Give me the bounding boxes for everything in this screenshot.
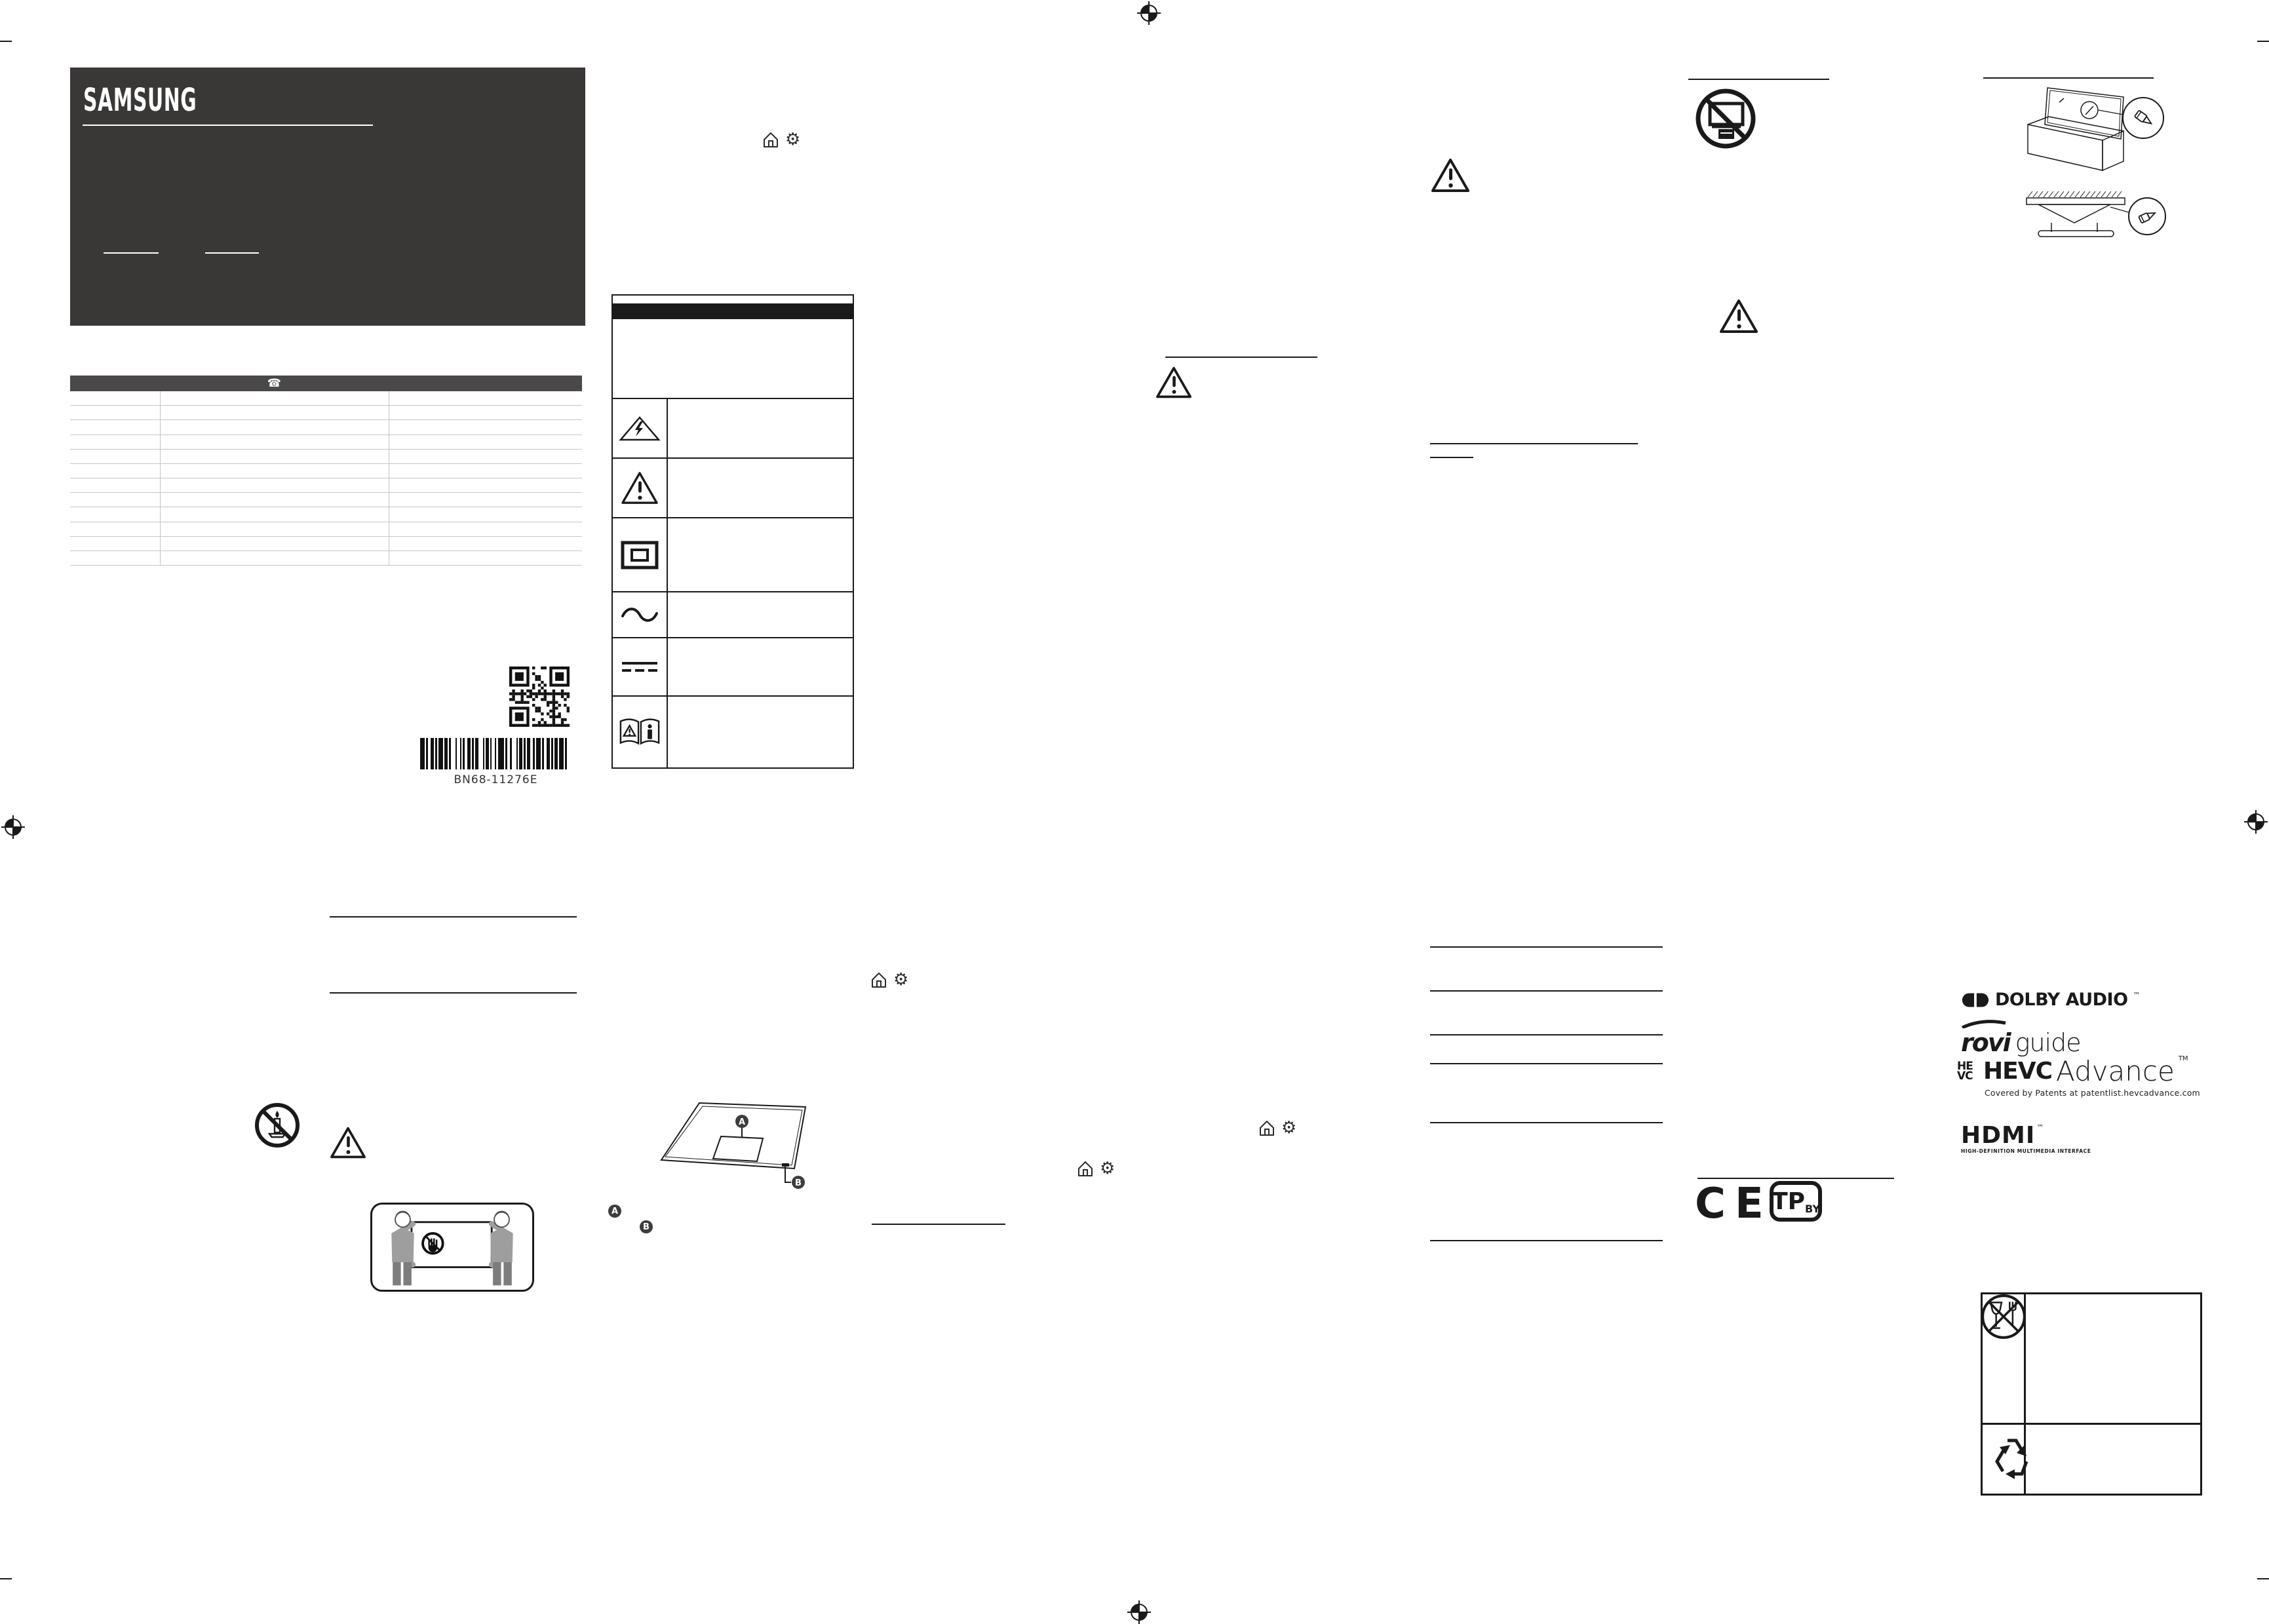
dolby-wordmark: DOLBY AUDIO bbox=[1995, 990, 2128, 1010]
barcode-bar bbox=[420, 738, 425, 769]
section-rule bbox=[1430, 1034, 1663, 1035]
telephone-icon: ☎ bbox=[160, 376, 389, 391]
model-fill-in-line bbox=[104, 252, 159, 254]
tv-back-panel-figure: A B bbox=[657, 1101, 808, 1199]
symbol-table-title-band bbox=[613, 303, 853, 319]
barcode-bar bbox=[512, 738, 516, 769]
contact-table-row bbox=[70, 507, 582, 522]
no-tv-on-furniture-icon bbox=[1694, 87, 1758, 151]
symbol-description-cell bbox=[668, 592, 853, 637]
settings-gear-icon: ⚙ bbox=[785, 131, 800, 148]
serial-fill-in-line bbox=[205, 252, 259, 254]
brand-cover-card: SAMSUNG bbox=[70, 68, 585, 326]
page-edge-tick bbox=[2257, 1578, 2269, 1579]
rovi-guide-word: guide bbox=[2015, 1028, 2081, 1057]
no-candle-icon bbox=[253, 1101, 301, 1150]
barcode-bar bbox=[498, 738, 504, 769]
ce-mark: CE bbox=[1695, 1180, 1773, 1228]
high-voltage-warning-icon bbox=[613, 399, 668, 457]
column-divider bbox=[389, 391, 389, 566]
barcode-bar bbox=[478, 738, 483, 769]
section-rule bbox=[1983, 77, 2154, 79]
hevc-stack-bottom: VC bbox=[1957, 1072, 1979, 1081]
settings-gear-icon: ⚙ bbox=[1100, 1160, 1115, 1177]
symbol-description-cell bbox=[668, 638, 853, 695]
carry-figure-art bbox=[372, 1205, 532, 1290]
column-divider bbox=[160, 391, 161, 566]
contact-table-row bbox=[70, 478, 582, 493]
home-icon bbox=[870, 971, 887, 988]
hevc-stack-icon: HE VC bbox=[1957, 1062, 1979, 1081]
symbol-row bbox=[613, 517, 853, 591]
callout-a-badge: A bbox=[608, 1205, 621, 1218]
dolby-audio-logo: DOLBY AUDIO ™ bbox=[1961, 990, 2141, 1010]
page-edge-tick bbox=[0, 1578, 12, 1579]
hevc-advance-logo: HE VC HEVC Advance TM bbox=[1957, 1055, 2188, 1087]
rovi-swoosh-icon bbox=[1961, 1020, 2007, 1028]
contact-table-row bbox=[70, 464, 582, 478]
symbol-row bbox=[613, 398, 853, 457]
tp-region-label: BY bbox=[1805, 1203, 1820, 1215]
heading-underline bbox=[1430, 443, 1638, 444]
contact-table-row bbox=[70, 420, 582, 435]
section-rule bbox=[1430, 990, 1663, 992]
barcode-bar bbox=[567, 738, 572, 769]
page-edge-tick bbox=[0, 41, 12, 42]
rovi-wordmark: rovi bbox=[1961, 1028, 2010, 1057]
home-icon bbox=[1077, 1160, 1094, 1177]
dolby-double-d-icon bbox=[1961, 992, 1990, 1008]
registration-mark-icon bbox=[1137, 1, 1161, 25]
section-rule bbox=[330, 916, 577, 918]
recycling-icon bbox=[1985, 1431, 2038, 1483]
heading-underline bbox=[1430, 457, 1473, 458]
callout-a-label: A bbox=[611, 1207, 618, 1216]
section-rule bbox=[1430, 1240, 1663, 1241]
hdmi-wordmark: HDMI bbox=[1961, 1122, 2035, 1149]
qr-code bbox=[509, 667, 570, 727]
callout-b-badge: B bbox=[640, 1220, 653, 1233]
section-rule bbox=[1165, 357, 1317, 358]
symbol-description-cell bbox=[668, 518, 853, 591]
symbol-row bbox=[613, 457, 853, 517]
barcode bbox=[420, 738, 572, 769]
contact-table-row bbox=[70, 522, 582, 537]
page-edge-tick bbox=[2257, 41, 2269, 42]
warning-triangle-icon bbox=[1430, 157, 1471, 194]
cover-divider-line bbox=[83, 125, 373, 126]
symbol-description-cell bbox=[668, 399, 853, 457]
home-icon bbox=[762, 131, 779, 148]
unpacking-screw-figure bbox=[2025, 84, 2169, 181]
two-person-carry-figure bbox=[370, 1203, 534, 1292]
contact-table-row bbox=[70, 435, 582, 450]
contact-table-row bbox=[70, 537, 582, 551]
symbol-table-intro bbox=[613, 319, 853, 398]
table-divider bbox=[1983, 1423, 2200, 1425]
menu-path-icons: ⚙ bbox=[1258, 1119, 1296, 1136]
settings-gear-icon: ⚙ bbox=[1281, 1119, 1296, 1136]
ac-voltage-icon bbox=[613, 592, 668, 637]
contact-table-rows bbox=[70, 391, 582, 566]
wall-mount-screw-figure bbox=[2025, 189, 2173, 241]
rovi-guide-logo: rovi guide bbox=[1961, 1020, 2081, 1057]
barcode-bar bbox=[536, 738, 541, 769]
callout-b-label: B bbox=[643, 1222, 650, 1232]
symbol-description-cell bbox=[668, 459, 853, 517]
warning-triangle-icon bbox=[1718, 298, 1759, 335]
contact-table-row bbox=[70, 406, 582, 420]
caution-warning-icon bbox=[613, 459, 668, 517]
contact-centre-table: ☎ bbox=[70, 376, 582, 566]
section-rule bbox=[1430, 946, 1663, 948]
contact-table-row bbox=[70, 551, 582, 566]
section-rule bbox=[330, 992, 577, 994]
registration-mark-icon bbox=[1127, 1600, 1151, 1624]
section-rule bbox=[1697, 1178, 1894, 1179]
barcode-bar bbox=[438, 738, 443, 769]
settings-gear-icon: ⚙ bbox=[893, 971, 908, 988]
symbol-row bbox=[613, 591, 853, 637]
registration-mark-icon bbox=[2244, 810, 2268, 834]
contact-table-row bbox=[70, 493, 582, 507]
contact-table-row bbox=[70, 450, 582, 464]
hevc-patent-line: Covered by Patents at patentlist.hevcadv… bbox=[1985, 1088, 2200, 1098]
section-rule bbox=[872, 1224, 1005, 1225]
section-rule bbox=[1430, 1063, 1663, 1064]
menu-path-icons: ⚙ bbox=[870, 971, 908, 988]
tp-label: TP bbox=[1772, 1188, 1805, 1215]
samsung-logo: SAMSUNG bbox=[83, 82, 197, 119]
home-icon bbox=[1258, 1119, 1275, 1136]
symbol-row bbox=[613, 637, 853, 695]
no-food-contact-icon bbox=[1980, 1293, 2027, 1340]
tp-by-mark: TP BY bbox=[1770, 1181, 1822, 1222]
warning-triangle-icon bbox=[1155, 366, 1193, 400]
do-not-touch-icon bbox=[423, 1233, 443, 1254]
contact-table-row bbox=[70, 391, 582, 406]
dc-voltage-icon bbox=[613, 638, 668, 695]
barcode-bar bbox=[559, 738, 564, 769]
safety-symbol-table bbox=[611, 294, 854, 769]
barcode-bar bbox=[451, 738, 456, 769]
hevc-wordmark: HEVC bbox=[1983, 1058, 2052, 1085]
section-rule bbox=[1430, 1122, 1663, 1123]
symbol-row bbox=[613, 695, 853, 767]
callout-b-label: B bbox=[795, 1178, 802, 1188]
hdmi-subtitle: HIGH-DEFINITION MULTIMEDIA INTERFACE bbox=[1961, 1148, 2091, 1154]
scanned-manual-page: { "page": { "background": "#ffffff", "in… bbox=[0, 0, 2269, 1622]
read-instruction-manual-icon bbox=[613, 697, 668, 767]
menu-path-icons: ⚙ bbox=[762, 131, 800, 148]
section-rule bbox=[1688, 79, 1829, 80]
hdmi-logo: HDMI ™ bbox=[1961, 1122, 2044, 1149]
barcode-label: BN68-11276E bbox=[420, 773, 572, 786]
symbol-description-cell bbox=[668, 697, 853, 767]
trademark-symbol: TM bbox=[2179, 1055, 2188, 1062]
contact-table-header: ☎ bbox=[70, 376, 582, 391]
hevc-advance-word: Advance bbox=[2056, 1055, 2175, 1087]
trademark-symbol: ™ bbox=[2133, 991, 2141, 999]
menu-path-icons: ⚙ bbox=[1077, 1160, 1115, 1177]
callout-a-label: A bbox=[739, 1117, 745, 1127]
warning-triangle-icon bbox=[329, 1126, 367, 1160]
class2-double-insulation-icon bbox=[613, 518, 668, 591]
registration-mark-icon bbox=[1, 815, 25, 839]
trademark-symbol: ™ bbox=[2036, 1123, 2044, 1132]
compliance-icon-table bbox=[1981, 1292, 2202, 1496]
